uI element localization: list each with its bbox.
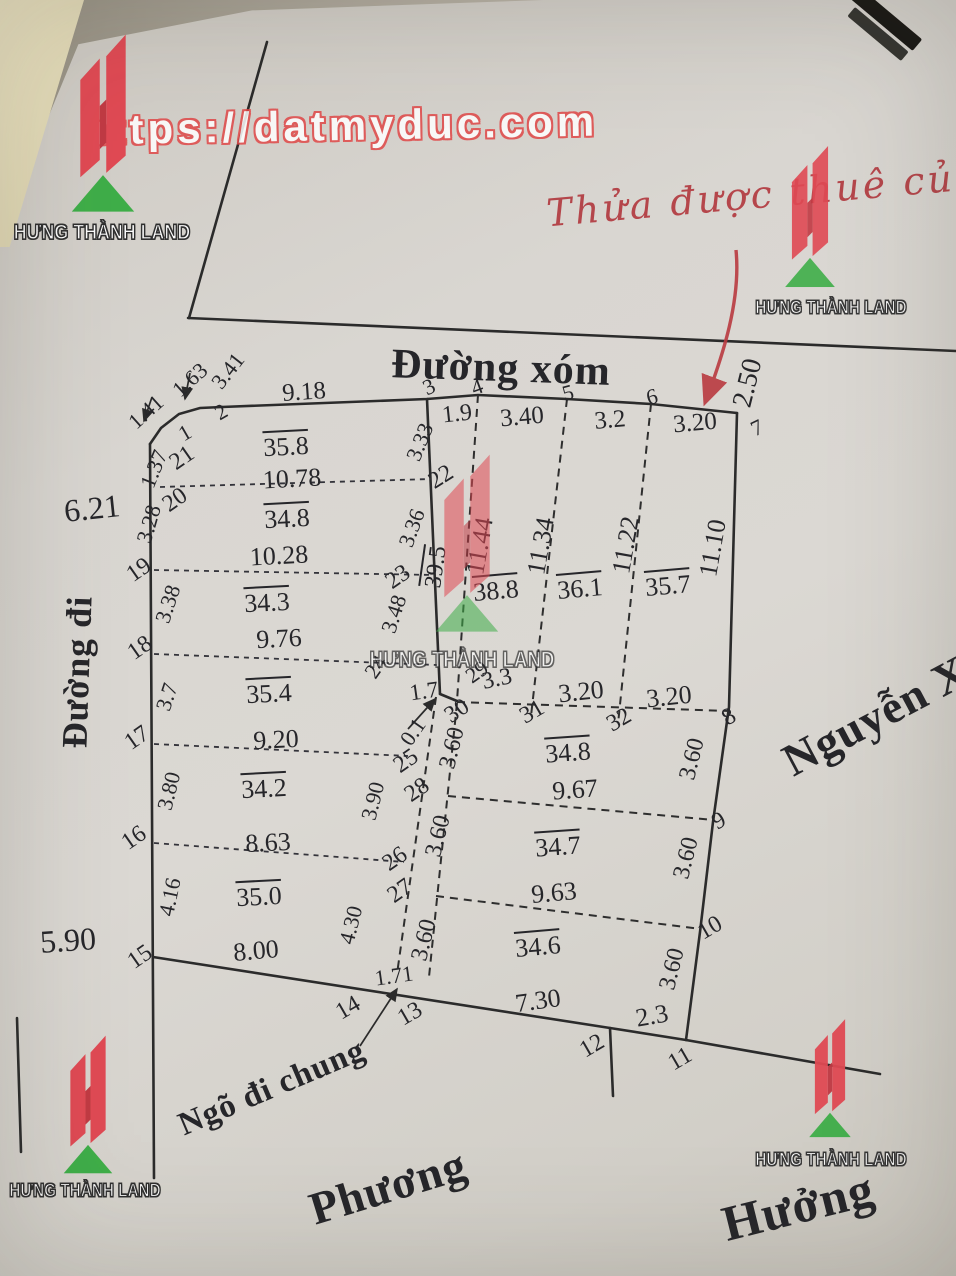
brand-logo-text: HƯNG THÀNH LAND — [370, 647, 555, 673]
measure: 3.20 — [557, 677, 605, 708]
parcel-area: 35.4 — [246, 680, 293, 708]
measure: 8.63 — [245, 829, 292, 857]
measure: 6.21 — [62, 489, 121, 527]
parcel-area: 34.2 — [241, 775, 288, 803]
measure: 7.30 — [514, 985, 563, 1017]
measure: 3.20 — [645, 682, 693, 713]
brand-logo-text: HƯNG THÀNH LAND — [9, 1181, 160, 1202]
measure: 3.40 — [499, 403, 545, 432]
brand-logo-icon — [809, 1015, 851, 1137]
measure: 9.67 — [551, 775, 598, 804]
brand-logo-text: HƯNG THÀNH LAND — [14, 221, 190, 245]
measure: 3.20 — [672, 409, 718, 438]
brand-logo-icon — [436, 448, 499, 632]
watermark-url: https://datmyduc.com — [81, 100, 598, 151]
measure: 1.71 — [373, 962, 414, 989]
parcel-area: 35.0 — [236, 883, 283, 911]
brand-logo-text: HƯNG THÀNH LAND — [755, 1150, 906, 1171]
measure: 9.18 — [281, 378, 326, 406]
measure: 9.20 — [253, 726, 300, 754]
parcel-area: 34.8 — [264, 505, 311, 533]
parcel-area: 35.7 — [644, 571, 692, 601]
measure: 1.9 — [441, 400, 473, 427]
photographed-land-survey-document: https://datmyduc.comThửa được thuê của t… — [0, 0, 956, 1276]
brand-logo-text: HƯNG THÀNH LAND — [755, 298, 906, 319]
parcel-area: 34.8 — [544, 738, 591, 767]
measure: 8.00 — [232, 936, 280, 966]
measure: 3.2 — [593, 406, 626, 434]
left-road-label: Đường đi — [56, 595, 97, 749]
parcel-area: 34.7 — [534, 832, 581, 861]
measure: 2.3 — [634, 1000, 671, 1031]
measure: 1.7 — [408, 678, 440, 705]
measure: 9.76 — [256, 625, 303, 653]
parcel-area: 35.8 — [263, 433, 310, 461]
parcel-area: 34.3 — [244, 589, 291, 617]
parcel-area: 34.6 — [514, 932, 562, 962]
measure: 9.63 — [530, 878, 578, 908]
measure: 10.78 — [262, 464, 322, 493]
brand-logo-icon — [785, 141, 835, 287]
parcel-area: 36.1 — [556, 574, 604, 604]
brand-logo-icon — [64, 1031, 113, 1174]
measure: 5.90 — [39, 922, 97, 958]
measure: 10.28 — [249, 541, 309, 570]
brand-logo-icon — [72, 28, 135, 212]
